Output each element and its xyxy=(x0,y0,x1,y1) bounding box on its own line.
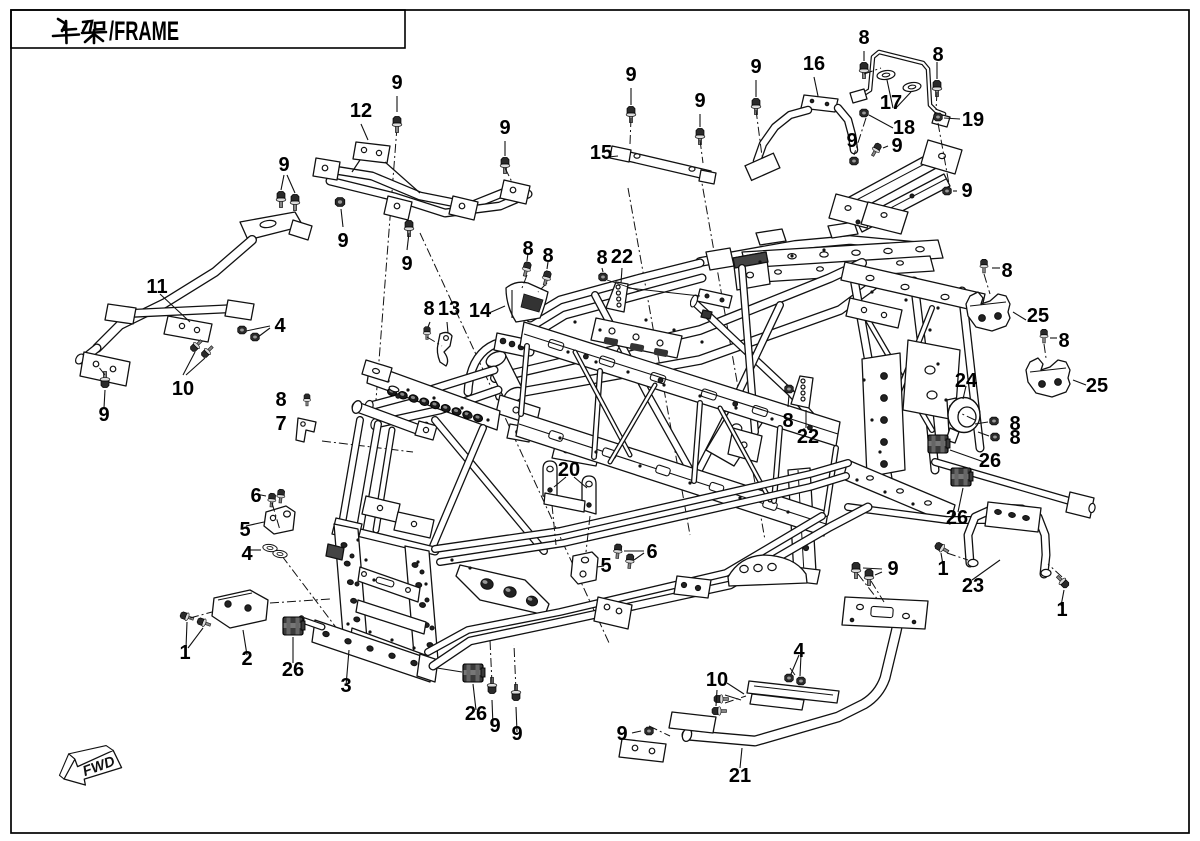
svg-text:8: 8 xyxy=(932,44,943,66)
svg-text:9: 9 xyxy=(846,130,857,152)
svg-text:4: 4 xyxy=(274,315,286,337)
svg-text:8: 8 xyxy=(423,298,434,320)
svg-text:13: 13 xyxy=(438,298,460,320)
svg-text:8: 8 xyxy=(1001,260,1012,282)
svg-text:9: 9 xyxy=(511,723,522,745)
svg-text:23: 23 xyxy=(962,575,984,597)
svg-text:11: 11 xyxy=(146,276,167,298)
svg-text:8: 8 xyxy=(1009,427,1020,449)
svg-text:9: 9 xyxy=(750,56,761,78)
svg-text:9: 9 xyxy=(489,715,500,737)
svg-text:9: 9 xyxy=(337,230,348,252)
svg-text:9: 9 xyxy=(616,723,627,745)
svg-text:24: 24 xyxy=(955,370,978,392)
svg-text:20: 20 xyxy=(558,459,580,481)
svg-text:4: 4 xyxy=(241,543,253,565)
svg-text:26: 26 xyxy=(282,659,304,681)
svg-text:9: 9 xyxy=(625,64,636,86)
svg-text:17: 17 xyxy=(880,92,902,114)
svg-text:8: 8 xyxy=(542,245,553,267)
svg-text:8: 8 xyxy=(782,410,793,432)
svg-text:10: 10 xyxy=(172,378,194,400)
svg-text:4: 4 xyxy=(793,640,805,662)
svg-text:9: 9 xyxy=(278,154,289,176)
svg-text:10: 10 xyxy=(706,669,728,691)
svg-text:9: 9 xyxy=(694,90,705,112)
svg-text:25: 25 xyxy=(1027,305,1049,327)
svg-text:26: 26 xyxy=(979,450,1001,472)
svg-text:/FRAME: /FRAME xyxy=(109,16,179,46)
svg-text:19: 19 xyxy=(962,109,984,131)
svg-text:8: 8 xyxy=(275,389,286,411)
svg-text:8: 8 xyxy=(1058,330,1069,352)
svg-text:1: 1 xyxy=(179,642,190,664)
svg-text:12: 12 xyxy=(350,100,372,122)
svg-text:9: 9 xyxy=(98,404,109,426)
svg-text:26: 26 xyxy=(946,507,968,529)
svg-text:16: 16 xyxy=(803,53,825,75)
svg-text:1: 1 xyxy=(937,558,948,580)
svg-text:22: 22 xyxy=(611,246,633,268)
svg-text:21: 21 xyxy=(729,765,751,787)
svg-text:8: 8 xyxy=(596,247,607,269)
svg-text:14: 14 xyxy=(469,300,492,322)
svg-text:22: 22 xyxy=(797,426,819,448)
svg-text:15: 15 xyxy=(590,142,612,164)
svg-text:5: 5 xyxy=(600,555,611,577)
svg-text:5: 5 xyxy=(239,519,250,541)
svg-text:9: 9 xyxy=(887,558,898,580)
svg-text:6: 6 xyxy=(250,485,261,507)
svg-text:25: 25 xyxy=(1086,375,1108,397)
svg-text:9: 9 xyxy=(499,117,510,139)
svg-text:2: 2 xyxy=(241,648,252,670)
svg-text:9: 9 xyxy=(891,135,902,157)
svg-text:1: 1 xyxy=(1056,599,1067,621)
svg-text:26: 26 xyxy=(465,703,487,725)
svg-text:6: 6 xyxy=(646,541,657,563)
svg-text:8: 8 xyxy=(522,238,533,260)
svg-text:9: 9 xyxy=(391,72,402,94)
svg-text:9: 9 xyxy=(401,253,412,275)
svg-text:7: 7 xyxy=(275,413,286,435)
svg-text:3: 3 xyxy=(340,675,351,697)
svg-text:9: 9 xyxy=(961,180,972,202)
svg-text:8: 8 xyxy=(858,27,869,49)
